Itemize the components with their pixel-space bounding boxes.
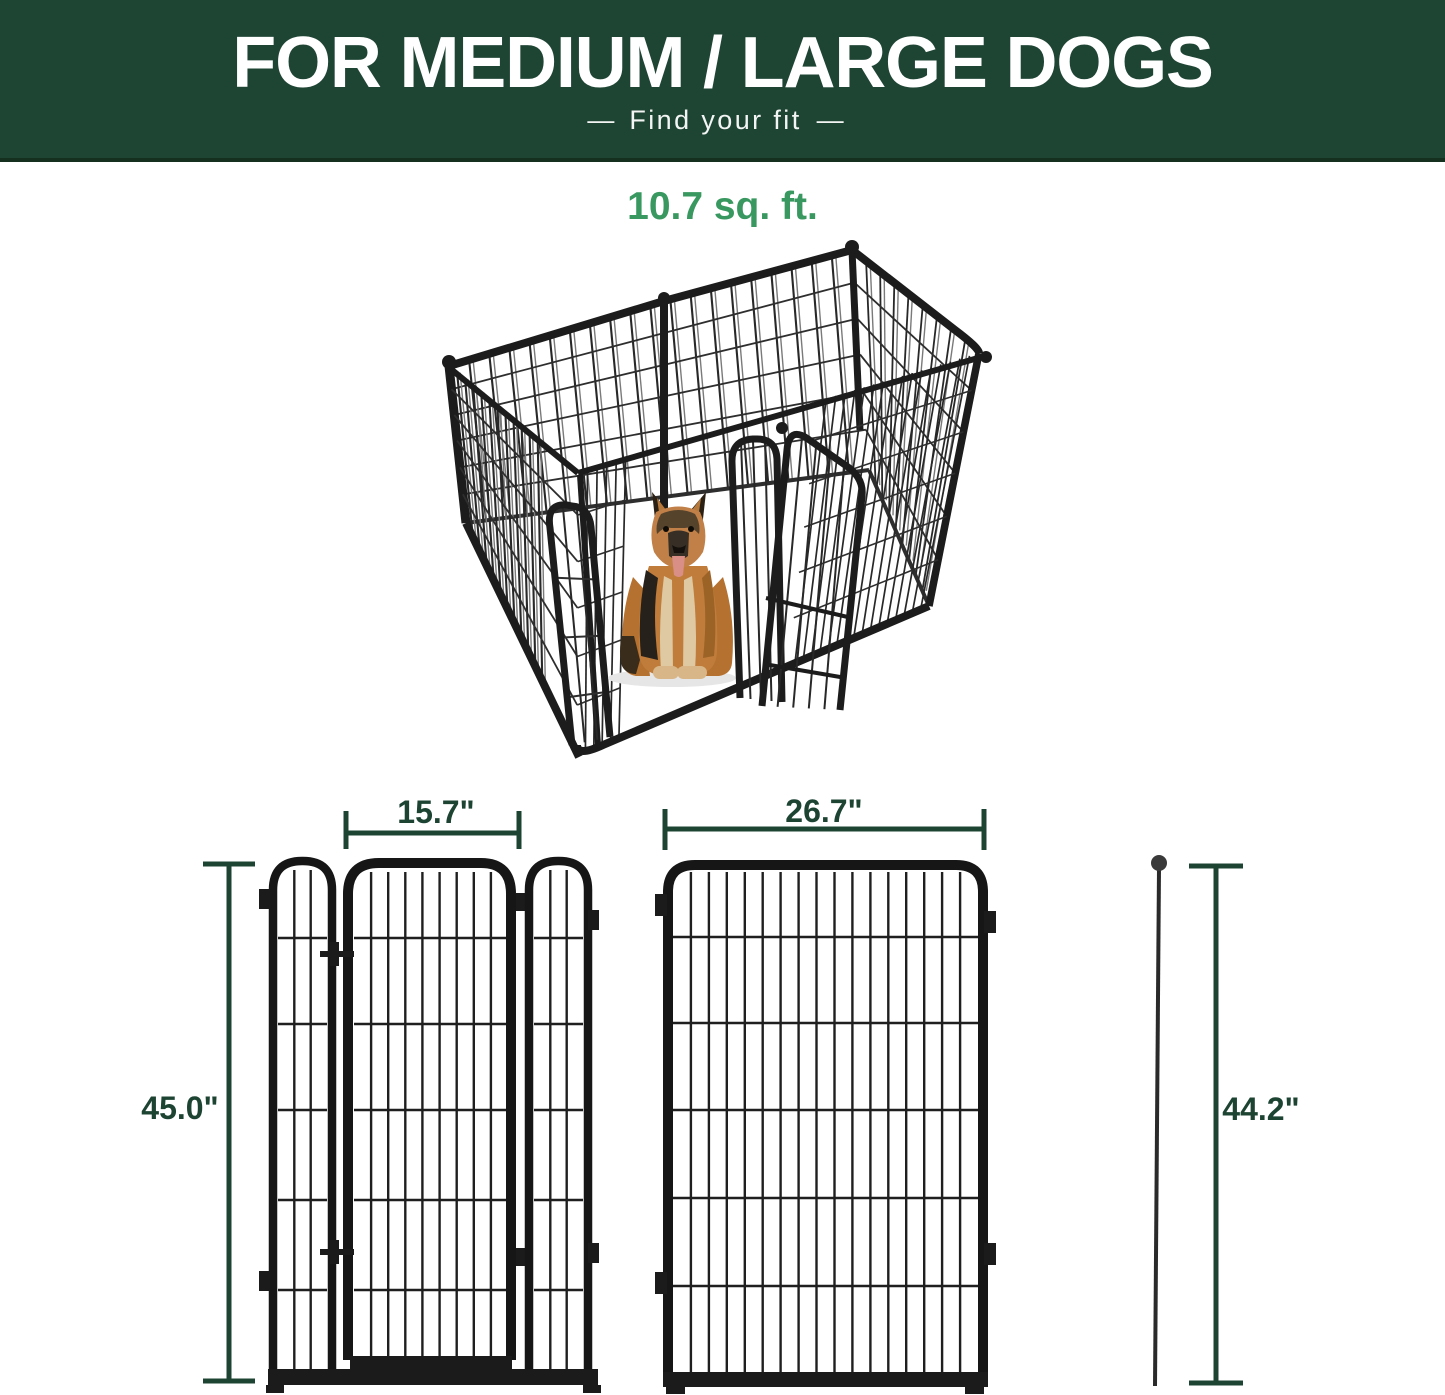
svg-text:26.7": 26.7" [785, 793, 862, 829]
svg-text:44.2": 44.2" [1222, 1091, 1299, 1127]
svg-text:45.0": 45.0" [141, 1090, 218, 1126]
svg-text:15.7": 15.7" [397, 794, 474, 830]
